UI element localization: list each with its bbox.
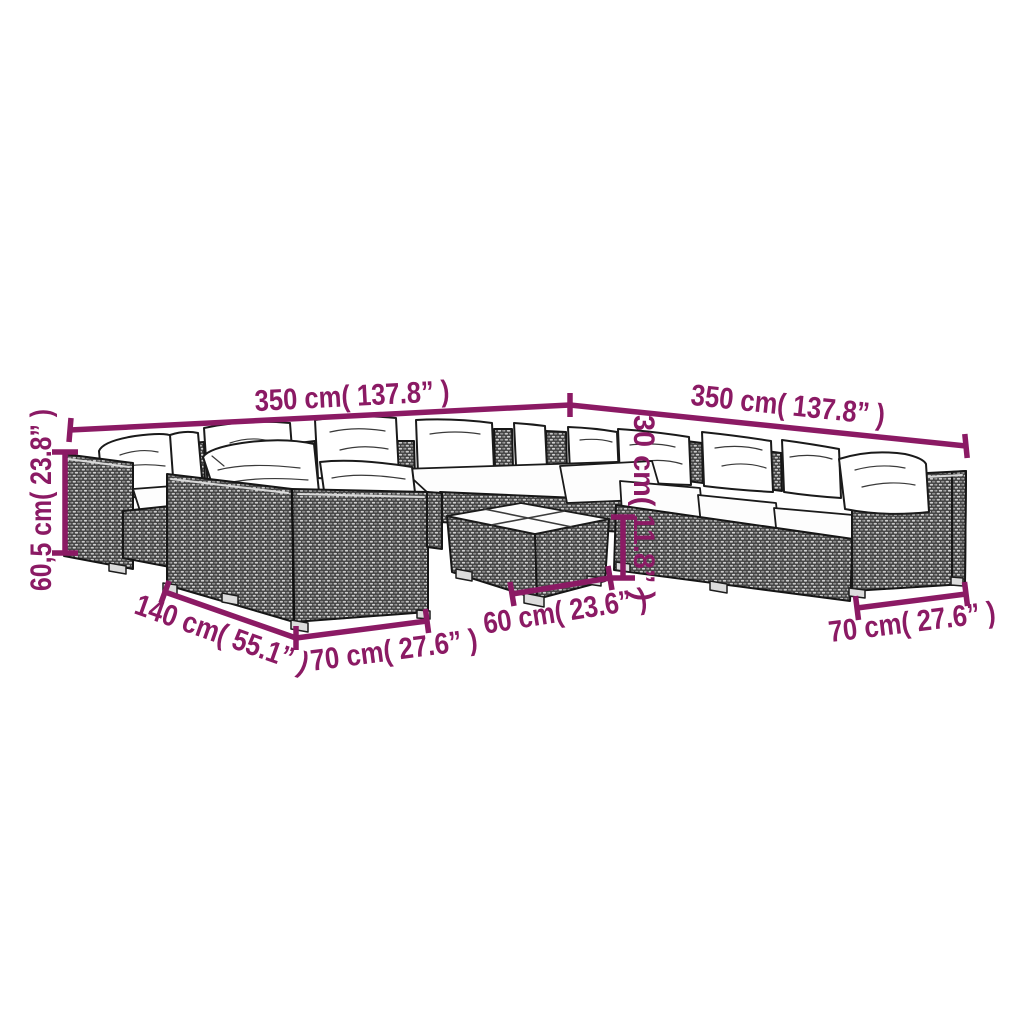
right-armrest-edge: [952, 471, 966, 585]
table-foot: [456, 569, 472, 581]
back-cushion: [782, 440, 841, 498]
right-arm-section: [839, 452, 966, 598]
dim-label-top-right-width: 350 cm( 137.8” ): [689, 379, 886, 432]
sofa-foot: [222, 593, 238, 605]
left-section-side-panel: [292, 489, 428, 622]
middle-post: [427, 492, 442, 549]
dim-cap: [608, 566, 612, 590]
dim-label-left-height: 60,5 cm( 23.8” ): [25, 409, 58, 591]
back-post: [494, 429, 513, 468]
dim-label-table-height: 30 cm( 11.8” ): [627, 415, 660, 601]
corner-base: [123, 506, 170, 567]
product-dimension-diagram: 350 cm( 137.8” ) 350 cm( 137.8” ) 60,5 c…: [0, 0, 1024, 1024]
dim-label-front-right-module: 70 cm( 27.6” ): [827, 596, 998, 649]
dim-cap: [69, 418, 71, 442]
dim-cap: [965, 434, 967, 458]
back-cushion: [702, 432, 773, 492]
sofa-foot: [951, 577, 963, 586]
back-cushion: [514, 423, 547, 468]
sofa-foot: [710, 581, 727, 593]
